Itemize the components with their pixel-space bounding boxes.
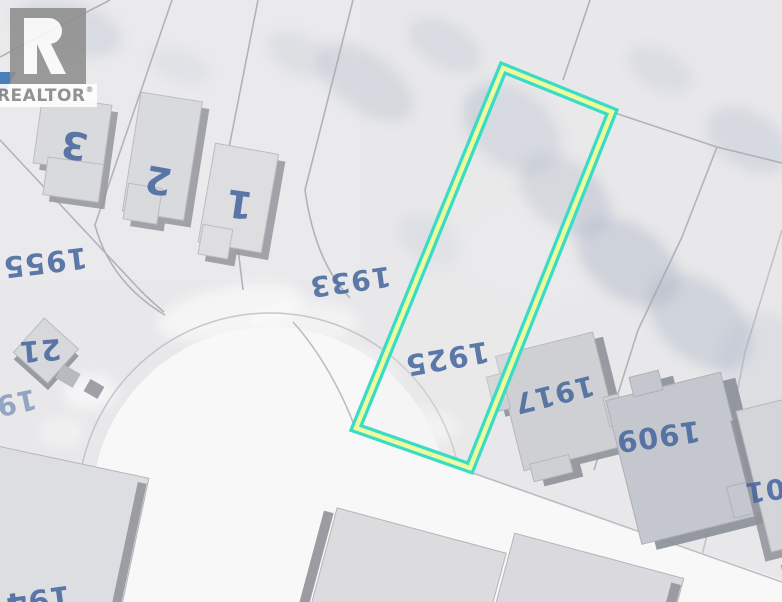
aerial-map: 3 2 1 1955 1933 1925 1917 1909 1901 21 1… <box>0 0 782 602</box>
realtor-watermark: REALTOR® <box>0 0 120 120</box>
realtor-r-icon <box>10 8 86 84</box>
lot-label-1955: 1955 <box>1 242 89 281</box>
lot-label-21: 21 <box>18 334 63 367</box>
realtor-logo-box <box>10 8 86 84</box>
realtor-text-strip: REALTOR® <box>0 84 97 107</box>
lot-label-1: 1 <box>223 183 255 224</box>
lot-label-19-partial: 19 <box>0 384 39 420</box>
registered-mark: ® <box>86 85 95 94</box>
realtor-brand-text: REALTOR® <box>0 86 94 106</box>
